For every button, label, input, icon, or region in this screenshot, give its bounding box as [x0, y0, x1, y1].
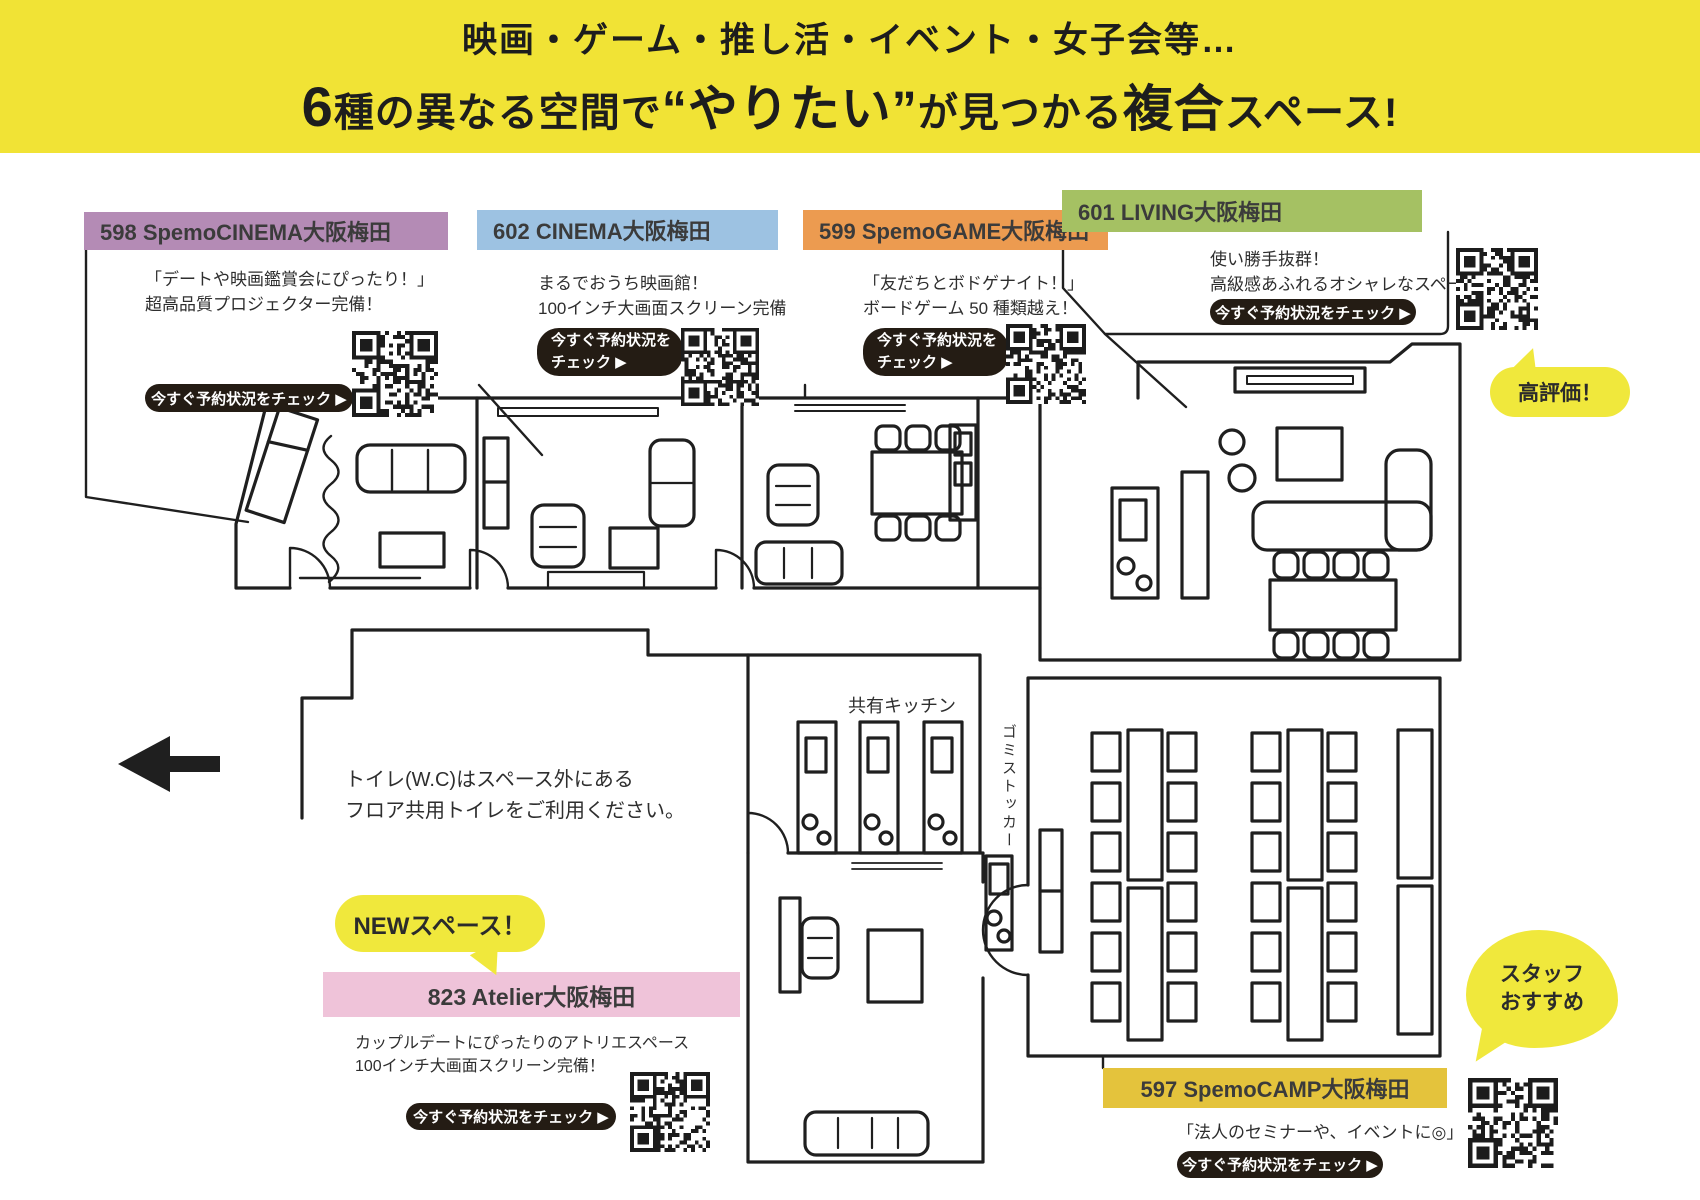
room-599-furniture [756, 405, 976, 584]
check-availability-button-598[interactable]: 今すぐ予約状況をチェック ▶ [145, 384, 353, 412]
room-desc-599: 「友だちとボドゲナイト！」 ボードゲーム 50 種類越え！ [863, 272, 1084, 321]
qr-code-601 [1456, 248, 1538, 330]
check-availability-button-602[interactable]: 今すぐ予約状況を チェック ▶ [537, 328, 683, 376]
button-line: チェック ▶ [551, 352, 627, 374]
desc-line: ボードゲーム 50 種類越え！ [863, 297, 1084, 322]
desc-line: 超高品質プロジェクター完備！ [145, 293, 434, 318]
qr-code-599 [1006, 324, 1086, 404]
leader-601 [1105, 334, 1186, 407]
check-availability-button-823[interactable]: 今すぐ予約状況をチェック ▶ [406, 1103, 616, 1130]
room-desc-598: 「デートや映画鑑賞会にぴったり！」 超高品質プロジェクター完備！ [145, 268, 434, 317]
toilet-note-line: トイレ(W.C)はスペース外にある [345, 765, 685, 796]
bubble-tail [1511, 344, 1543, 376]
desc-line: 「友だちとボドゲナイト！」 [863, 272, 1084, 297]
staff-recommend-line2: おすすめ [1500, 989, 1584, 1017]
staff-recommend-line1: スタッフ [1500, 961, 1584, 989]
toilet-note-line: フロア共用トイレをご利用ください。 [345, 796, 685, 827]
desc-line: まるでおうち映画館！ [538, 272, 787, 297]
qr-code-598 [352, 331, 438, 417]
room-602-furniture [484, 408, 694, 588]
toilet-note: トイレ(W.C)はスペース外にある フロア共用トイレをご利用ください。 [345, 765, 685, 827]
entrance-arrow-icon [118, 736, 220, 792]
button-line: 今すぐ予約状況を [877, 330, 997, 352]
room-desc-602: まるでおうち映画館！ 100インチ大画面スクリーン完備 [538, 272, 787, 321]
shared-kitchen-label: 共有キッチン [848, 692, 956, 718]
high-rating-label: 高評価！ [1518, 377, 1602, 407]
leader-602 [479, 385, 542, 455]
button-line: 今すぐ予約状況を [551, 330, 671, 352]
desc-line: 高級感あふれるオシャレなスペース [1210, 273, 1480, 298]
trash-stocker-unit [986, 856, 1012, 950]
room-header-598: 598 SpemoCINEMA大阪梅田 [84, 212, 448, 250]
room-header-601: 601 LIVING大阪梅田 [1062, 190, 1422, 232]
new-space-bubble: NEWスペース！ [335, 895, 545, 952]
kitchen-units [798, 722, 962, 853]
check-availability-button-597[interactable]: 今すぐ予約状況をチェック ▶ [1177, 1151, 1383, 1178]
trash-stocker-label: ゴミストッカー [998, 724, 1019, 850]
qr-code-597 [1468, 1078, 1558, 1168]
button-line: チェック ▶ [877, 352, 953, 374]
room-598-furniture [246, 407, 465, 582]
desc-line: 使い勝手抜群！ [1210, 248, 1480, 273]
room-header-597: 597 SpemoCAMP大阪梅田 [1103, 1068, 1447, 1108]
room-823-furniture [780, 898, 928, 1155]
qr-code-823 [630, 1072, 710, 1152]
floor-plan [0, 0, 1700, 1200]
room-601-furniture [1112, 368, 1431, 658]
desc-line: 「デートや映画鑑賞会にぴったり！」 [145, 268, 434, 293]
check-availability-button-601[interactable]: 今すぐ予約状況をチェック ▶ [1210, 299, 1416, 325]
qr-code-602 [681, 328, 759, 406]
desc-line: カップルデートにぴったりのアトリエスペース [355, 1032, 689, 1055]
room-header-602: 602 CINEMA大阪梅田 [477, 210, 778, 250]
room-header-823: 823 Atelier大阪梅田 [323, 972, 740, 1017]
desc-line: 「法人のセミナーや、イベントに◎」 [1177, 1121, 1463, 1146]
high-rating-bubble: 高評価！ [1490, 367, 1630, 417]
new-space-label: NEWスペース！ [353, 906, 526, 941]
room-desc-597: 「法人のセミナーや、イベントに◎」 [1177, 1121, 1463, 1146]
room-597-furniture [1040, 730, 1432, 1040]
check-availability-button-599[interactable]: 今すぐ予約状況を チェック ▶ [863, 328, 1009, 376]
room-desc-601: 使い勝手抜群！ 高級感あふれるオシャレなスペース [1210, 248, 1480, 297]
desc-line: 100インチ大画面スクリーン完備 [538, 297, 787, 322]
